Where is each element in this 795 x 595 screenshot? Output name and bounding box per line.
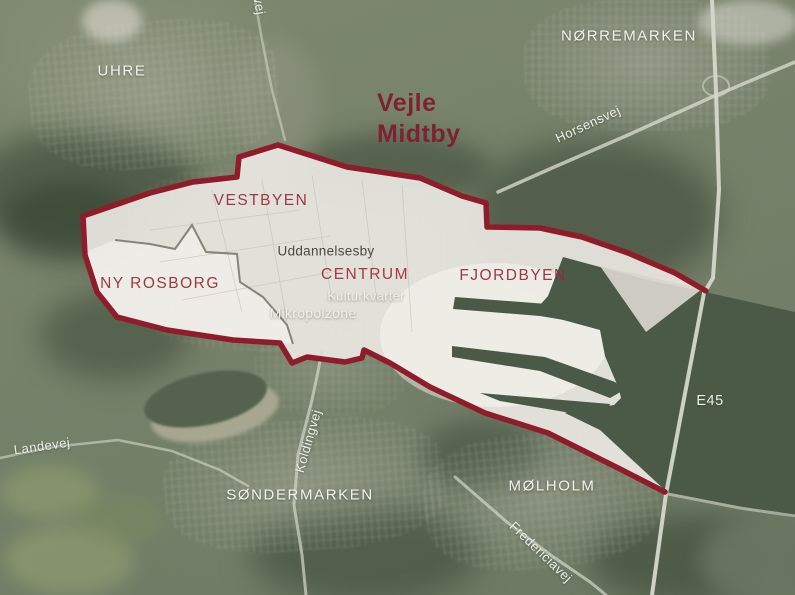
vejle-midtby-map: Vejle Midtby VESTBYEN NY ROSBORG CENTRUM… [0, 0, 795, 595]
road-horsensvej [498, 62, 795, 192]
road-jellingvej [255, 0, 285, 140]
road-koldingvej [294, 352, 322, 595]
road-landevej [0, 440, 248, 486]
map-title: Vejle Midtby [377, 88, 461, 150]
map-title-line1: Vejle [377, 88, 461, 119]
road-fredericiavej [455, 477, 606, 595]
map-title-line2: Midtby [377, 119, 461, 150]
